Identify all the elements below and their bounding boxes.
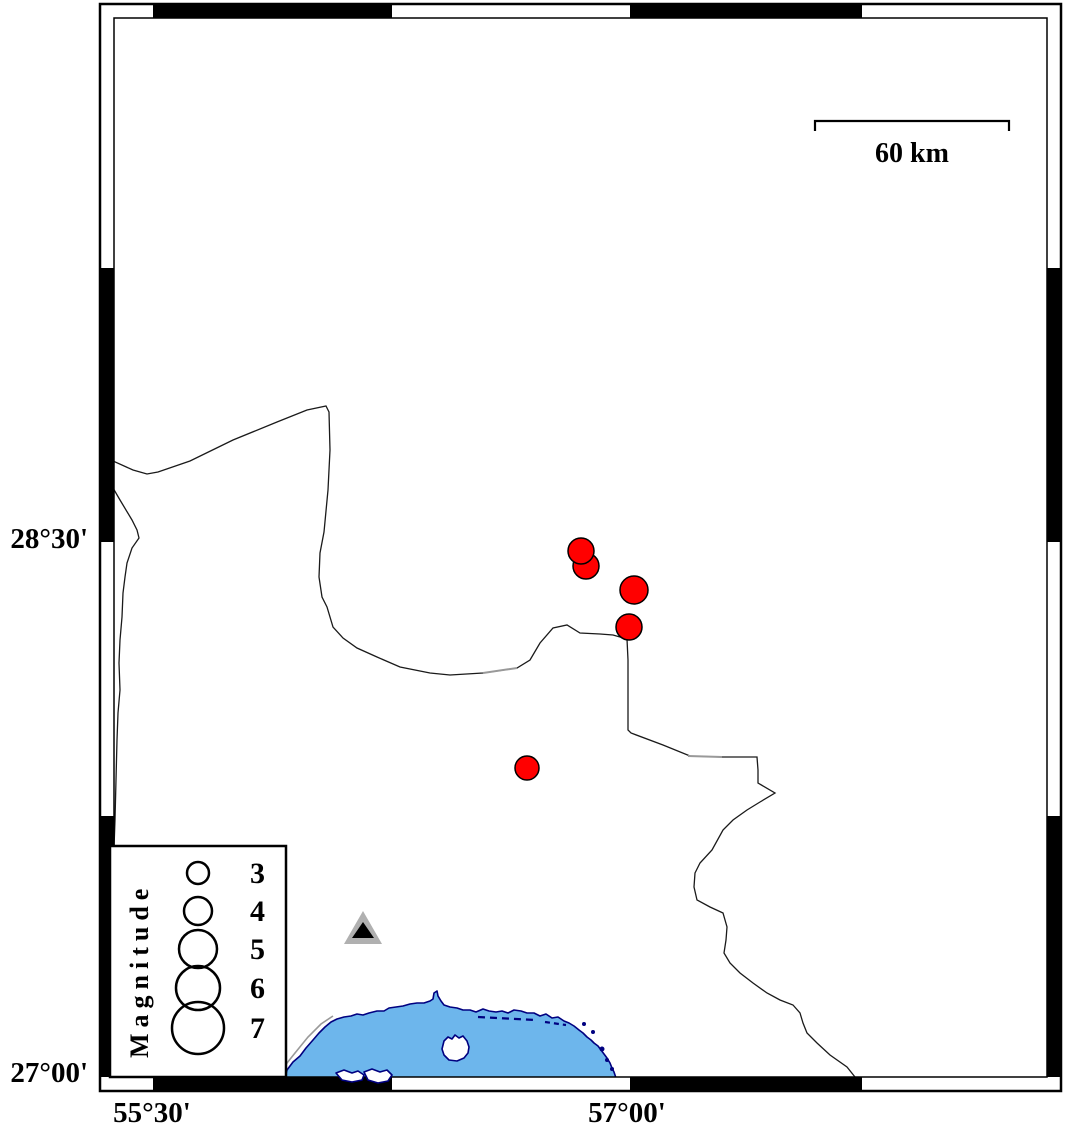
- island: [442, 1035, 469, 1061]
- legend-magnitude-label: 3: [250, 857, 265, 890]
- axis-label-lon-5530: 55°30': [113, 1097, 191, 1129]
- legend-title: Magnitude: [125, 883, 154, 1058]
- epicenter-marker: [515, 756, 539, 780]
- seismicity-map-figure: 60 km 28°30' 27°00' 55°30' 57°00' Magnit…: [0, 0, 1066, 1129]
- axis-label-lon-5700: 57°00': [588, 1097, 666, 1129]
- epicenter-marker: [616, 614, 642, 640]
- scale-bar-label: 60 km: [875, 138, 949, 169]
- epicenter-marker: [568, 538, 594, 564]
- magnitude-legend: Magnitude 34567: [110, 846, 286, 1077]
- legend-magnitude-label: 6: [250, 972, 265, 1005]
- axis-label-lat-2830: 28°30': [10, 523, 88, 555]
- legend-magnitude-label: 5: [250, 933, 265, 966]
- epicenter-marker: [620, 576, 648, 604]
- legend-magnitude-label: 7: [250, 1012, 265, 1045]
- map-canvas: 60 km 28°30' 27°00' 55°30' 57°00' Magnit…: [0, 0, 1066, 1129]
- road-overlay-segment: [688, 756, 722, 757]
- axis-label-lat-2700: 27°00': [10, 1057, 88, 1089]
- legend-magnitude-label: 4: [250, 895, 265, 928]
